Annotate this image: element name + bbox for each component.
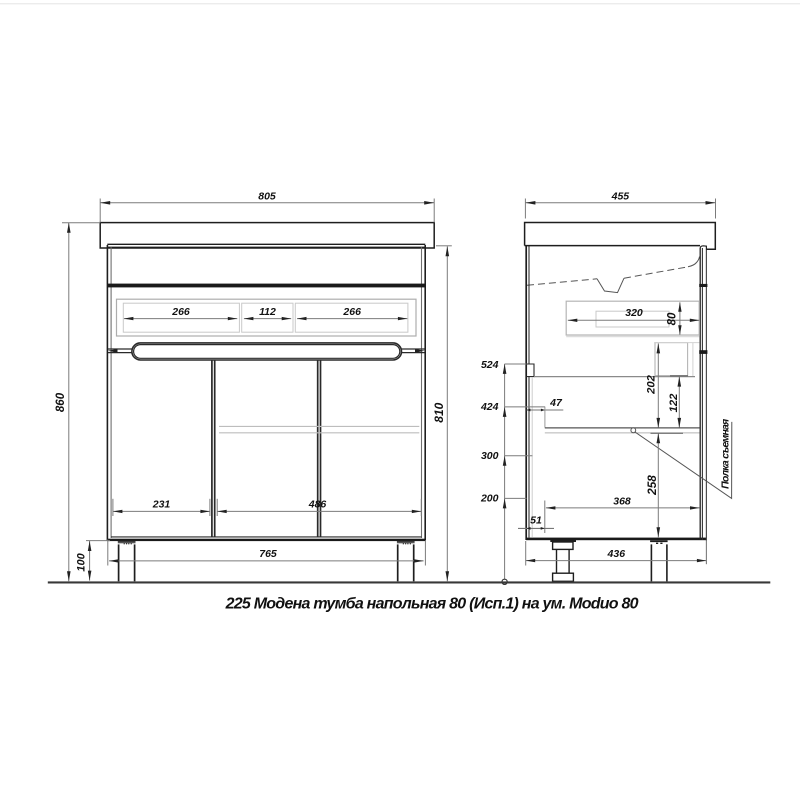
svg-text:258: 258 — [645, 475, 659, 496]
svg-text:80: 80 — [666, 312, 678, 325]
svg-text:300: 300 — [481, 450, 499, 462]
svg-text:860: 860 — [55, 392, 67, 412]
svg-text:200: 200 — [480, 493, 499, 505]
svg-text:231: 231 — [152, 499, 171, 511]
svg-text:524: 524 — [481, 359, 499, 371]
svg-text:455: 455 — [611, 191, 630, 203]
svg-text:424: 424 — [480, 401, 499, 413]
svg-text:805: 805 — [258, 191, 276, 203]
svg-text:122: 122 — [668, 393, 680, 413]
svg-text:368: 368 — [613, 496, 631, 508]
svg-text:202: 202 — [645, 374, 657, 395]
svg-text:47: 47 — [549, 397, 563, 409]
svg-text:112: 112 — [259, 306, 276, 318]
svg-text:765: 765 — [259, 548, 277, 560]
svg-text:225 Модена тумба напольная 80: 225 Модена тумба напольная 80 (Исп.1) на… — [225, 596, 639, 613]
svg-text:266: 266 — [342, 306, 361, 318]
svg-text:Полка съемная: Полка съемная — [719, 419, 731, 489]
svg-text:436: 436 — [607, 548, 626, 560]
svg-text:486: 486 — [308, 499, 327, 511]
svg-text:266: 266 — [171, 306, 190, 318]
svg-text:100: 100 — [75, 552, 87, 571]
svg-text:320: 320 — [625, 307, 643, 319]
svg-text:810: 810 — [432, 402, 446, 422]
svg-text:51: 51 — [530, 515, 542, 527]
